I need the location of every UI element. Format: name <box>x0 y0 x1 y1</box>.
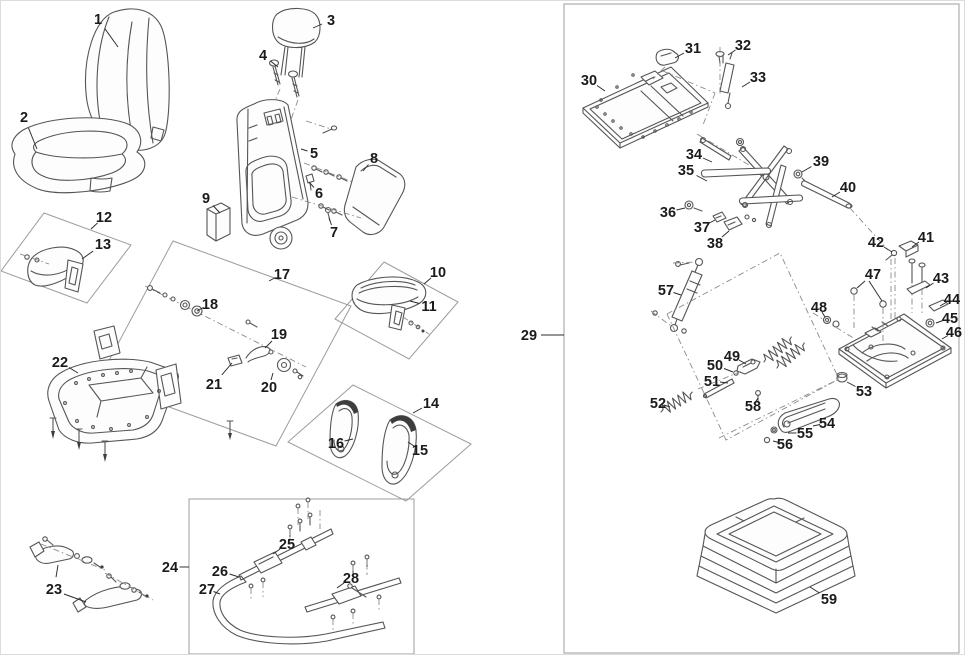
part-label-13: 13 <box>95 237 111 253</box>
part-label-9: 9 <box>202 191 210 207</box>
part-label-52: 52 <box>650 396 666 412</box>
part-label-17: 17 <box>274 267 290 283</box>
part-label-35: 35 <box>678 163 694 179</box>
part-label-19: 19 <box>271 327 287 343</box>
part-label-5: 5 <box>310 146 318 162</box>
leader-line-26 <box>230 574 240 577</box>
extra-leader-line-0 <box>64 594 86 602</box>
part-label-59: 59 <box>821 592 837 608</box>
part-label-44: 44 <box>944 292 960 308</box>
part-label-43: 43 <box>933 271 949 287</box>
part-label-53: 53 <box>856 384 872 400</box>
leader-line-47 <box>857 281 865 288</box>
part-label-20: 20 <box>261 380 277 396</box>
part-54-arm <box>719 380 839 443</box>
part-label-51: 51 <box>704 374 720 390</box>
part-label-4: 4 <box>259 48 267 64</box>
part-label-33: 33 <box>750 70 766 86</box>
part-label-22: 22 <box>52 355 68 371</box>
part-label-7: 7 <box>330 225 338 241</box>
part-headrest <box>273 8 321 77</box>
part-label-34: 34 <box>686 147 702 163</box>
part-backrest-frame <box>237 100 337 249</box>
leader-line-34 <box>703 158 712 162</box>
part-label-31: 31 <box>685 41 701 57</box>
leader-line-7 <box>329 218 332 225</box>
leader-line-20 <box>271 373 273 380</box>
part-label-42: 42 <box>868 235 884 251</box>
leader-line-23 <box>56 565 58 577</box>
part-label-38: 38 <box>707 236 723 252</box>
part-label-32: 32 <box>735 38 751 54</box>
leader-line-50 <box>724 369 733 373</box>
part-39-nut <box>794 170 802 178</box>
part-label-55: 55 <box>797 426 813 442</box>
part-springs <box>658 333 808 416</box>
part-label-46: 46 <box>946 325 962 341</box>
part-label-56: 56 <box>777 437 793 453</box>
leader-line-39 <box>802 167 812 173</box>
part-label-25: 25 <box>279 537 295 553</box>
part-label-57: 57 <box>658 283 674 299</box>
leader-line-42 <box>884 247 892 252</box>
leader-line-59 <box>810 587 820 593</box>
part-label-39: 39 <box>813 154 829 170</box>
part-label-23: 23 <box>46 582 62 598</box>
part-label-16: 16 <box>328 436 344 452</box>
group-box-14 <box>288 385 471 501</box>
part-armrest-left <box>20 247 83 292</box>
part-label-58: 58 <box>745 399 761 415</box>
part-label-6: 6 <box>315 186 323 202</box>
part-label-14: 14 <box>423 396 439 412</box>
leader-line-14 <box>413 408 422 413</box>
part-label-12: 12 <box>96 210 112 226</box>
part-label-3: 3 <box>327 13 335 29</box>
part-label-27: 27 <box>199 582 215 598</box>
extra-leader-line-1 <box>869 281 882 301</box>
leader-line-5 <box>301 149 308 151</box>
part-switch-box <box>207 203 230 241</box>
part-suspension-top-plate <box>583 67 715 148</box>
part-seat-cushion <box>12 118 145 193</box>
leader-line-21 <box>222 363 232 375</box>
leader-line-36 <box>677 208 686 210</box>
leader-line-33 <box>742 82 750 87</box>
part-label-15: 15 <box>412 443 428 459</box>
part-mount-brackets <box>30 537 153 612</box>
part-rail-assembly <box>213 498 401 644</box>
leader-line-53 <box>847 382 856 387</box>
part-label-54: 54 <box>819 416 835 432</box>
part-label-2: 2 <box>20 110 28 126</box>
part-label-50: 50 <box>707 358 723 374</box>
part-label-21: 21 <box>206 377 222 393</box>
part-label-29: 29 <box>521 328 537 344</box>
parts-catalog-page: 1234567891011121314151617181920212223242… <box>0 0 965 655</box>
leader-line-30 <box>597 86 605 92</box>
part-label-10: 10 <box>430 265 446 281</box>
part-48-washers <box>813 313 855 339</box>
part-33-gas-strut <box>720 53 734 109</box>
part-label-36: 36 <box>660 205 676 221</box>
part-label-37: 37 <box>694 220 710 236</box>
part-label-48: 48 <box>811 300 827 316</box>
part-label-18: 18 <box>202 297 218 313</box>
part-label-40: 40 <box>840 180 856 196</box>
leader-line-57 <box>674 293 682 296</box>
part-label-1: 1 <box>94 12 102 28</box>
part-label-47: 47 <box>865 267 881 283</box>
part-seat-pan <box>48 326 233 462</box>
part-label-11: 11 <box>421 299 436 315</box>
exploded-parts-diagram: 1234567891011121314151617181920212223242… <box>1 1 965 655</box>
part-label-30: 30 <box>581 73 597 89</box>
part-label-8: 8 <box>370 151 378 167</box>
part-label-41: 41 <box>918 230 934 246</box>
part-label-28: 28 <box>343 571 359 587</box>
part-label-26: 26 <box>212 564 228 580</box>
leader-line-13 <box>82 251 93 259</box>
part-label-24: 24 <box>162 560 178 576</box>
part-label-49: 49 <box>724 349 740 365</box>
part-base-frame <box>839 314 951 388</box>
part-back-panel <box>292 159 405 234</box>
part-armrest-right <box>352 277 429 334</box>
